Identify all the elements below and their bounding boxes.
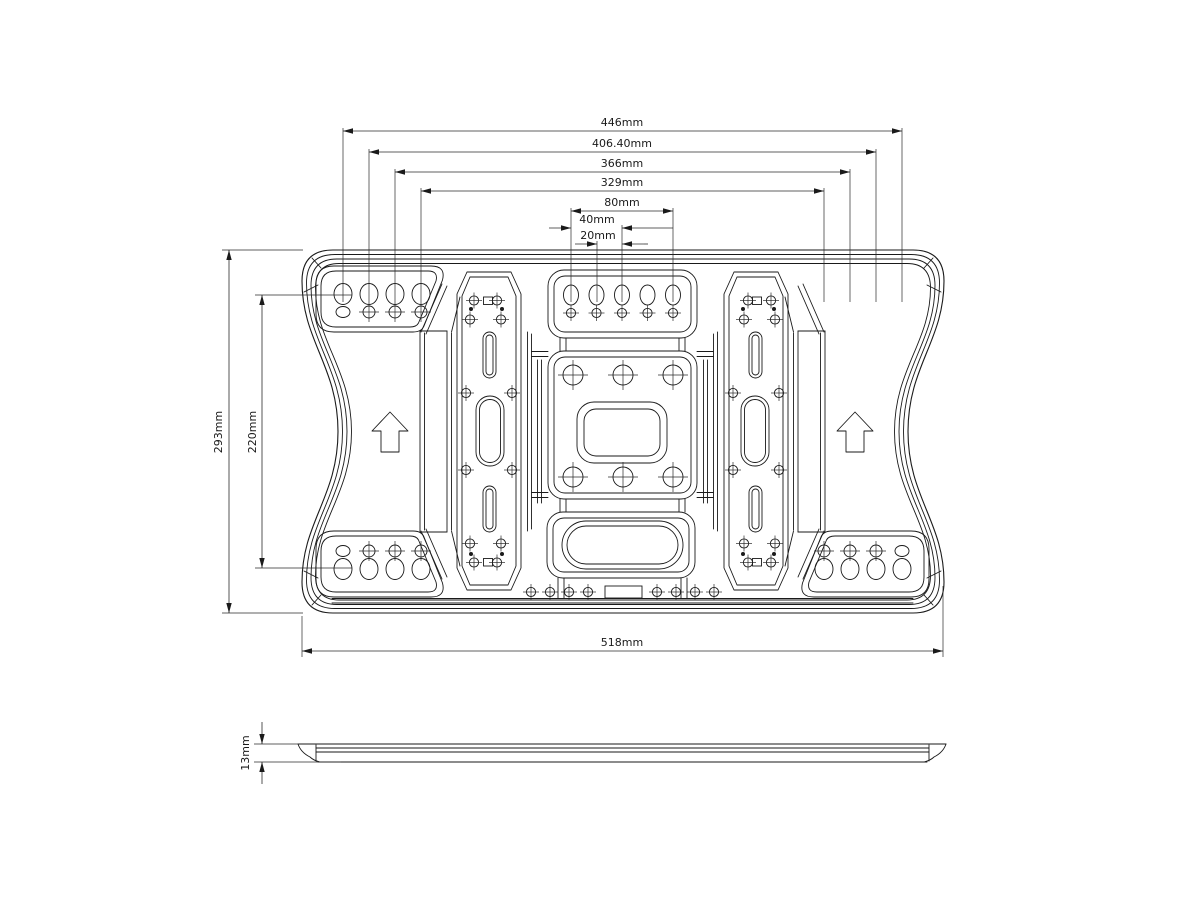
dim-label-220: 220mm — [246, 411, 259, 453]
panel-slots — [476, 332, 504, 532]
dim-40: 40mm — [549, 213, 673, 228]
dim-406: 406.40mm — [369, 137, 876, 152]
dim-80: 80mm — [571, 196, 673, 211]
bend-ticks — [304, 258, 941, 605]
dim-label-40: 40mm — [579, 213, 614, 226]
top-hole-block — [548, 270, 697, 338]
dim-label-293: 293mm — [212, 411, 225, 453]
up-arrow-icon — [372, 412, 408, 452]
bottom-strip — [332, 586, 913, 603]
dim-20: 20mm — [575, 229, 648, 244]
dim-13: 13mm — [239, 722, 262, 784]
dim-446: 446mm — [343, 116, 902, 131]
center-opening — [577, 402, 667, 463]
dim-label-80: 80mm — [604, 196, 639, 209]
inner-strip — [528, 332, 549, 531]
dim-518: 518mm — [302, 636, 943, 651]
dim-label-406: 406.40mm — [592, 137, 652, 150]
vesa-panel — [457, 272, 521, 590]
dim-label-518: 518mm — [601, 636, 643, 649]
dim-label-366: 366mm — [601, 157, 643, 170]
dim-293: 293mm — [212, 250, 229, 613]
side-profile-view — [298, 744, 946, 762]
dim-329: 329mm — [421, 176, 824, 191]
dim-366: 366mm — [395, 157, 850, 172]
front-view — [302, 250, 944, 613]
fastener-cluster-top — [462, 293, 509, 328]
dim-label-329: 329mm — [601, 176, 643, 189]
fastener-cluster-bottom — [462, 536, 509, 571]
center-plate — [548, 351, 697, 499]
dim-label-13: 13mm — [239, 735, 252, 770]
dim-label-20: 20mm — [580, 229, 615, 242]
bottom-strip-window — [605, 586, 642, 598]
bottom-slot-block — [547, 512, 695, 578]
center-column — [332, 270, 913, 603]
drawing-sheet: 446mm 406.40mm 366mm 329mm 80mm 40mm — [0, 0, 1200, 900]
side-rail — [420, 284, 460, 579]
corner-hole-block — [316, 266, 443, 332]
dim-220: 220mm — [246, 295, 262, 568]
technical-drawing: 446mm 406.40mm 366mm 329mm 80mm 40mm — [0, 0, 1200, 900]
bottom-strip-holes-left — [523, 584, 596, 600]
dim-label-446: 446mm — [601, 116, 643, 129]
